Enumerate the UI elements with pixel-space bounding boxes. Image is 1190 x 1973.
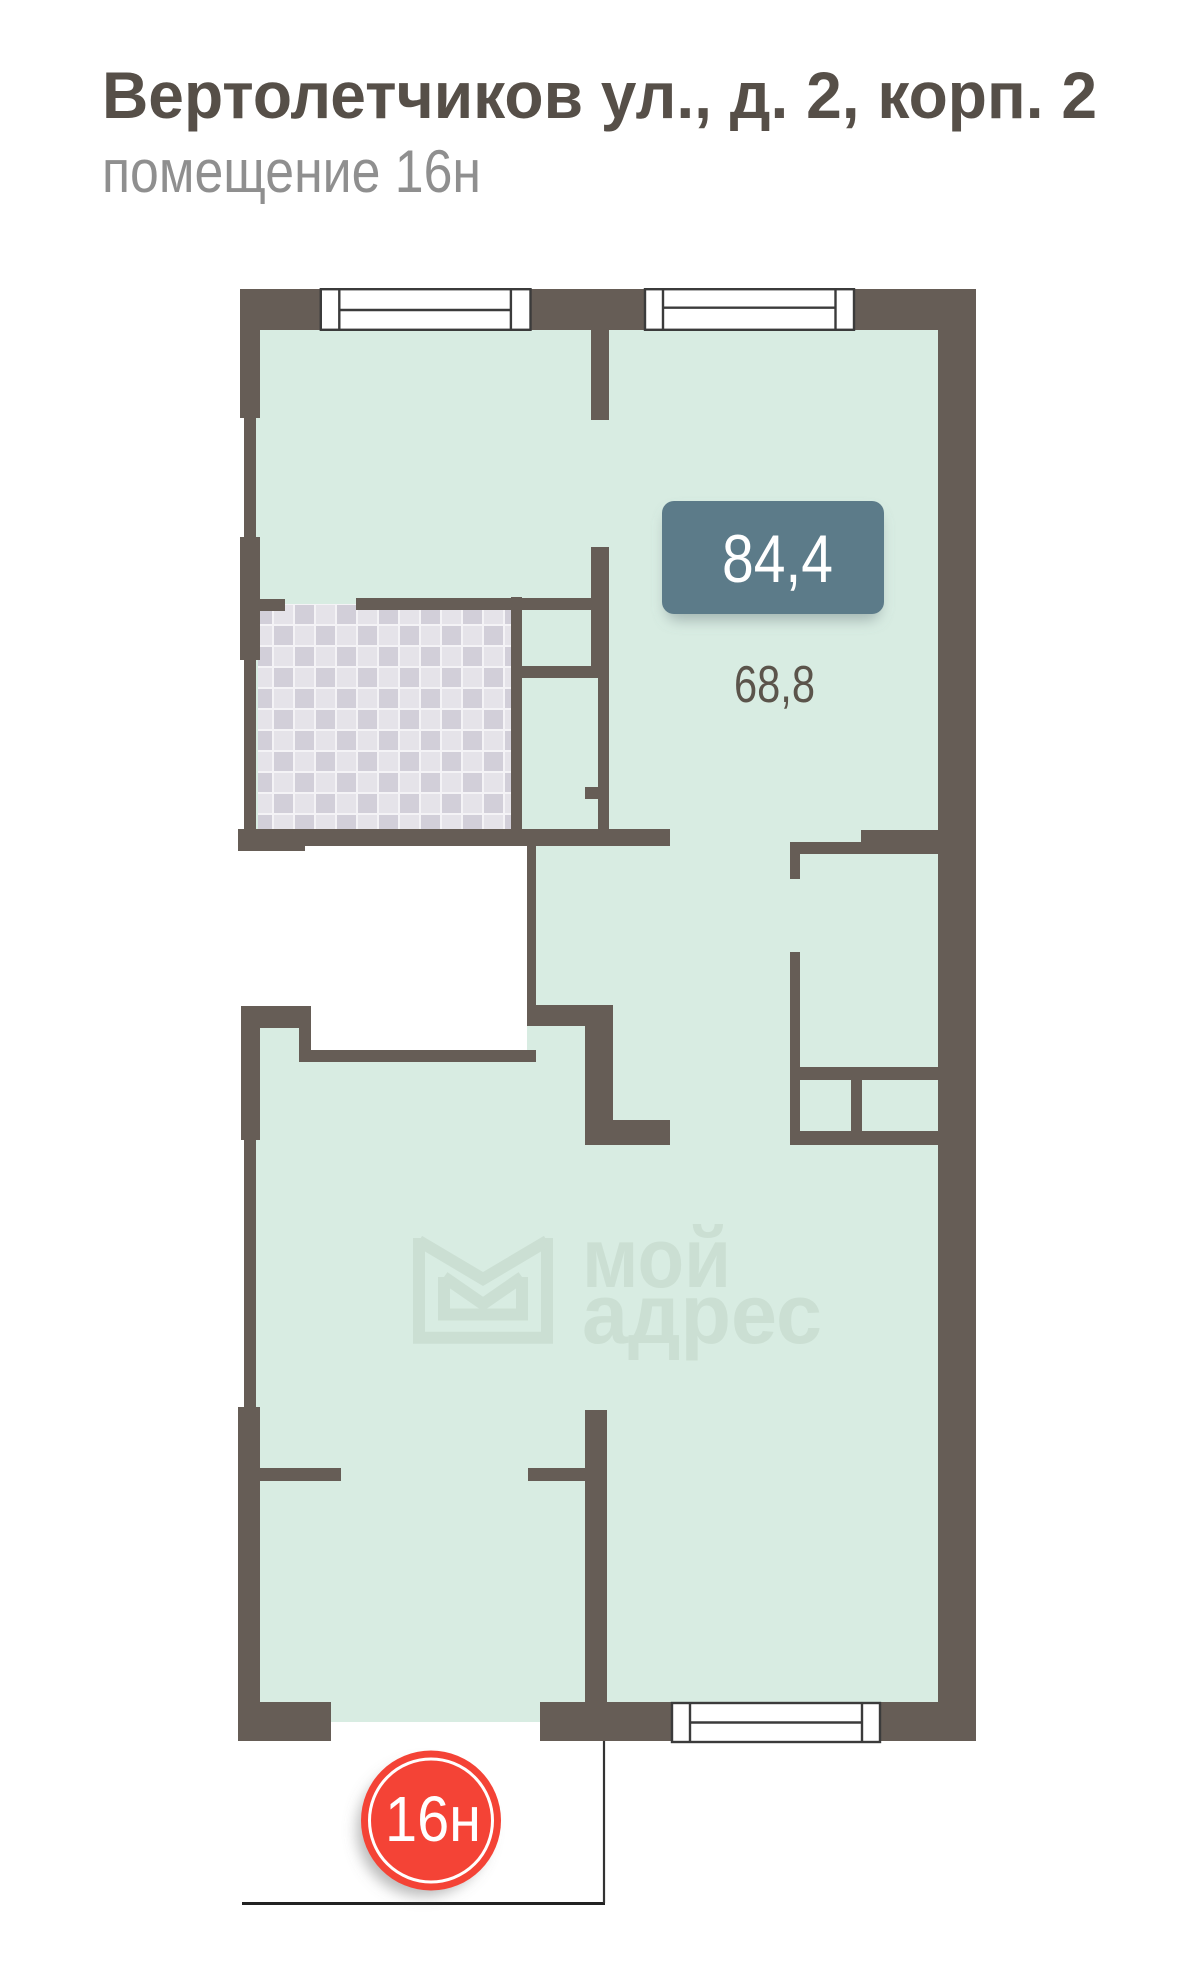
svg-text:помещение 16н: помещение 16н	[102, 138, 481, 205]
svg-text:Вертолетчиков ул., д. 2, корп.: Вертолетчиков ул., д. 2, корп. 2	[102, 58, 1097, 132]
svg-text:16н: 16н	[385, 1783, 481, 1855]
svg-text:84,4: 84,4	[722, 521, 833, 597]
svg-text:адрес: адрес	[582, 1267, 822, 1361]
svg-text:68,8: 68,8	[734, 656, 815, 714]
